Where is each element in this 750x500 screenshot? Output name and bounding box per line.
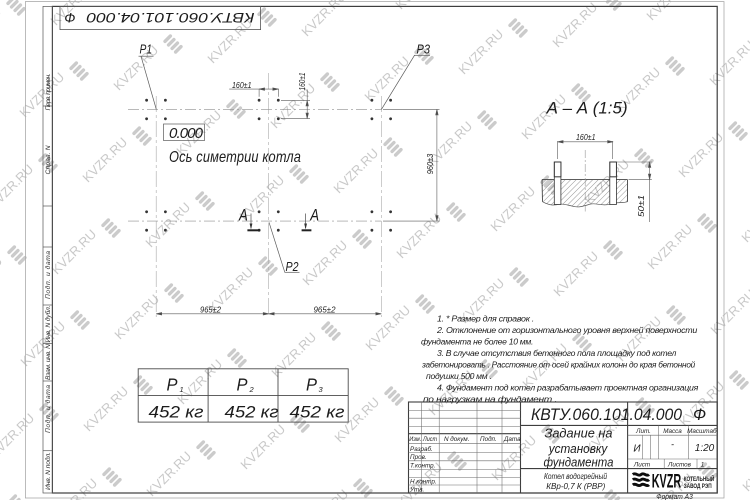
svg-text:КОТЕЛЬНЫЙ: КОТЕЛЬНЫЙ (684, 475, 715, 483)
svg-text:А – А (1:5): А – А (1:5) (546, 100, 628, 118)
svg-text:160±1: 160±1 (232, 80, 252, 90)
svg-text:И: И (633, 444, 641, 455)
svg-text:2: 2 (249, 385, 255, 394)
svg-text:КВТУ.060.101.04.000: КВТУ.060.101.04.000 (531, 406, 683, 424)
svg-text:50±1: 50±1 (636, 195, 646, 217)
svg-text:Листов: Листов (667, 461, 692, 468)
svg-text:452 кг: 452 кг (149, 403, 204, 422)
svg-text:960±3: 960±3 (425, 153, 435, 174)
svg-text:Дата: Дата (503, 436, 521, 443)
svg-text:-: - (671, 440, 674, 450)
svg-text:KVZR: KVZR (652, 471, 682, 493)
svg-text:Инв. N подл.: Инв. N подл. (44, 452, 52, 490)
svg-text:160±1: 160±1 (297, 73, 307, 91)
svg-text:4. Фундамент под котел разраб: 4. Фундамент под котел разрабатывает про… (437, 382, 699, 392)
svg-text:1: 1 (701, 461, 705, 468)
svg-text:Справ. N: Справ. N (45, 145, 52, 174)
svg-text:Изм.: Изм. (409, 436, 421, 443)
svg-text:фундамента: фундамента (544, 455, 614, 469)
svg-text:Формат А3: Формат А3 (656, 492, 693, 500)
svg-text:Подп. и дата: Подп. и дата (44, 251, 52, 299)
svg-text:установку: установку (548, 442, 608, 456)
svg-text:А: А (309, 206, 319, 225)
svg-text:N докум.: N докум. (444, 435, 469, 443)
svg-text:Ф: Ф (693, 406, 706, 424)
svg-text:Лист: Лист (422, 436, 437, 443)
svg-text:Взам. инв. N: Взам. инв. N (45, 344, 52, 380)
svg-text:Р: Р (306, 375, 317, 395)
svg-text:1:20: 1:20 (695, 443, 715, 454)
svg-text:Пров.: Пров. (410, 454, 427, 461)
svg-text:452 кг: 452 кг (290, 403, 345, 422)
svg-text:Т.контр.: Т.контр. (410, 463, 435, 470)
svg-text:Ф: Ф (64, 10, 75, 26)
svg-text:452 кг: 452 кг (225, 403, 279, 422)
svg-text:Н.контр.: Н.контр. (410, 479, 437, 486)
svg-text:Масштаб: Масштаб (687, 427, 717, 435)
svg-text:1: 1 (180, 385, 184, 394)
svg-text:Подп. и дата: Подп. и дата (44, 385, 52, 433)
svg-text:Р: Р (237, 375, 248, 395)
svg-text:Лист: Лист (633, 461, 650, 468)
svg-text:Р: Р (167, 375, 178, 395)
svg-text:Котел водогрейный: Котел водогрейный (544, 471, 607, 481)
svg-text:Утв.: Утв. (409, 487, 424, 494)
svg-text:965±2: 965±2 (314, 304, 336, 314)
svg-text:фундамента не более 10 мм.: фундамента не более 10 мм. (421, 336, 533, 346)
svg-text:КВТУ.060.101.04.000: КВТУ.060.101.04.000 (86, 10, 254, 26)
svg-text:подушки 500 мм .: подушки 500 мм . (426, 371, 492, 381)
svg-text:3. В случае отсутствия бетонн: 3. В случае отсутствия бетонного пола пл… (437, 348, 677, 358)
svg-text:2. Отклонение от горизонтальн: 2. Отклонение от горизонтального уровня … (436, 325, 698, 335)
svg-text:А: А (238, 206, 248, 225)
svg-text:Р1: Р1 (140, 43, 153, 57)
svg-text:Подп.: Подп. (480, 435, 497, 443)
svg-text:КВр-0,7 К (РВР): КВр-0,7 К (РВР) (546, 481, 605, 491)
svg-text:Задание на: Задание на (545, 427, 613, 441)
svg-text:0.000: 0.000 (169, 125, 204, 142)
svg-text:Лит.: Лит. (635, 428, 651, 435)
svg-text:Инв. N дубл.: Инв. N дубл. (44, 305, 52, 342)
svg-text:Масса: Масса (663, 428, 682, 435)
svg-text:Перв. примен.: Перв. примен. (45, 73, 52, 110)
svg-text:965±2: 965±2 (200, 304, 221, 314)
svg-text:ЗАВОД РЭП: ЗАВОД РЭП (684, 483, 712, 490)
svg-text:Разраб.: Разраб. (410, 445, 433, 453)
svg-text:Ось симетрии котла: Ось симетрии котла (169, 149, 301, 166)
svg-text:забетонировать . Расстояние о: забетонировать . Расстояние от осей край… (421, 360, 695, 370)
svg-text:1. * Размер для справок .: 1. * Размер для справок . (437, 313, 534, 323)
svg-text:Р3: Р3 (417, 43, 431, 57)
svg-text:160±1: 160±1 (576, 132, 596, 142)
svg-text:Р2: Р2 (286, 260, 299, 274)
